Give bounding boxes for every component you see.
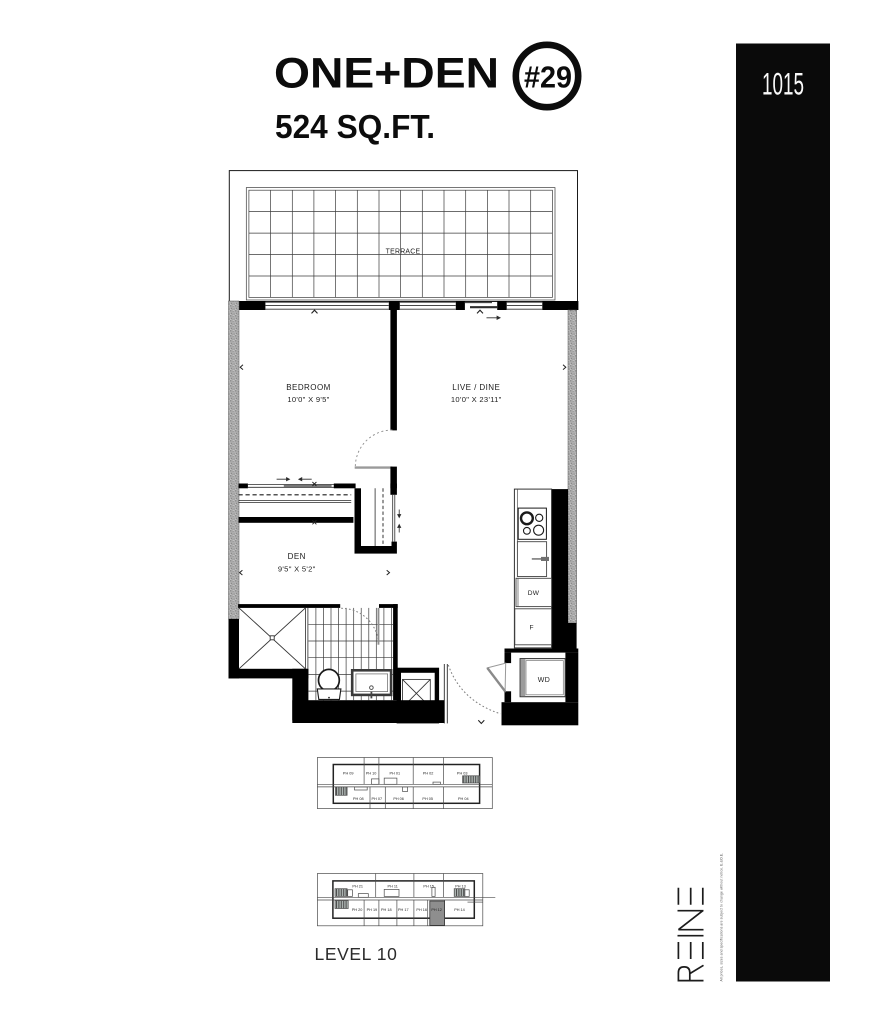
svg-text:#29: #29 — [524, 60, 572, 95]
svg-text:DW: DW — [528, 590, 540, 597]
svg-text:PH 21: PH 21 — [352, 885, 363, 889]
svg-text:PH 01: PH 01 — [390, 771, 401, 775]
svg-text:PH 08: PH 08 — [353, 797, 364, 801]
svg-text:TERRACE: TERRACE — [386, 249, 421, 256]
svg-text:1015: 1015 — [762, 66, 804, 102]
svg-text:BEDROOM: BEDROOM — [286, 383, 331, 392]
svg-text:PH 09: PH 09 — [343, 771, 354, 775]
svg-text:PH 14: PH 14 — [454, 908, 465, 912]
svg-text:DEN: DEN — [288, 552, 306, 561]
svg-text:PH 12: PH 12 — [431, 908, 442, 912]
svg-text:524 SQ.FT.: 524 SQ.FT. — [275, 108, 435, 145]
svg-text:All prices, sizes and specific: All prices, sizes and specifications are… — [720, 853, 724, 982]
svg-text:PH 04: PH 04 — [458, 797, 469, 801]
svg-text:ONE+DEN: ONE+DEN — [274, 50, 499, 98]
svg-text:PH 18: PH 18 — [381, 908, 392, 912]
svg-text:10'0" X 9'5": 10'0" X 9'5" — [287, 395, 329, 404]
svg-text:PH 10: PH 10 — [366, 771, 377, 775]
svg-text:PH 07: PH 07 — [372, 797, 383, 801]
svg-text:PH 15: PH 15 — [423, 885, 434, 889]
svg-text:PH 17: PH 17 — [398, 908, 409, 912]
svg-text:9'5" X 5'2": 9'5" X 5'2" — [278, 565, 316, 574]
svg-text:PH 20: PH 20 — [352, 908, 363, 912]
svg-text:PH 16: PH 16 — [416, 908, 427, 912]
svg-text:PH 11: PH 11 — [388, 885, 398, 889]
svg-text:10'0" X 23'11": 10'0" X 23'11" — [451, 395, 502, 404]
svg-text:PH 06: PH 06 — [393, 797, 404, 801]
svg-text:PH 03: PH 03 — [457, 771, 468, 775]
svg-text:PH 13: PH 13 — [455, 885, 466, 889]
svg-text:PH 05: PH 05 — [422, 797, 433, 801]
svg-text:LIVE / DINE: LIVE / DINE — [452, 383, 500, 392]
svg-text:WD: WD — [538, 677, 550, 684]
svg-text:F: F — [529, 625, 533, 632]
svg-text:PH 02: PH 02 — [423, 771, 434, 775]
svg-text:LEVEL 10: LEVEL 10 — [315, 944, 398, 964]
svg-text:PH 19: PH 19 — [367, 908, 378, 912]
